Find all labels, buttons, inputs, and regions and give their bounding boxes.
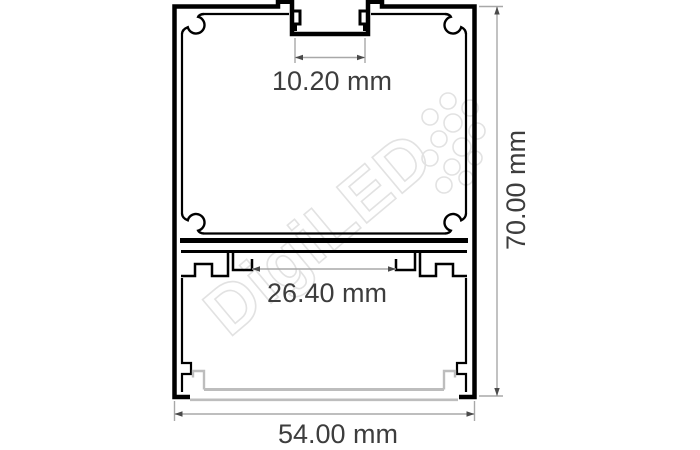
technical-drawing-page: DigiLED — [0, 0, 700, 450]
dimension-label-inner-channel: 26.40 mm — [267, 278, 387, 308]
led-profile-cross-section-drawing: DigiLED — [0, 0, 700, 450]
dimension-label-overall-width: 54.00 mm — [278, 419, 398, 449]
dimension-label-overall-height: 70.00 mm — [501, 130, 531, 250]
dimension-label-top-slot: 10.20 mm — [272, 66, 392, 96]
